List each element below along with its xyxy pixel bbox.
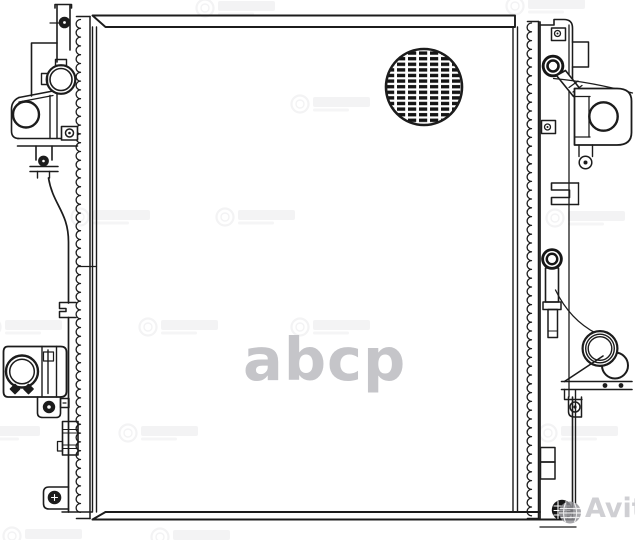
lower-left-screw-tab bbox=[44, 487, 69, 509]
top-mounting-band bbox=[93, 16, 516, 28]
radiator-line-art bbox=[0, 0, 635, 540]
lower-right-outlet-pipe bbox=[583, 331, 628, 378]
side-slots bbox=[541, 448, 556, 480]
hose-clip bbox=[60, 303, 77, 318]
abcp-watermark-text: abcp bbox=[243, 330, 403, 389]
right-clevis-bracket bbox=[552, 183, 579, 205]
left-tank-outline bbox=[49, 178, 93, 512]
left-serrated-seam bbox=[76, 17, 96, 519]
upper-right-port-bracket bbox=[575, 89, 632, 169]
upper-left-inlet-port bbox=[32, 5, 76, 97]
core-fin-detail-circle bbox=[386, 49, 462, 125]
drain-tube bbox=[556, 290, 597, 334]
lower-left-mounting-tab bbox=[38, 397, 70, 418]
avito-logo-icon bbox=[559, 502, 581, 524]
radiator-core bbox=[93, 16, 576, 520]
right-serrated-seam bbox=[527, 22, 538, 519]
pin-hole-tab bbox=[552, 28, 566, 41]
avito-watermark-text: Avito bbox=[585, 495, 635, 522]
listing-image: abcp Avito bbox=[0, 0, 635, 540]
left-drain-fitting bbox=[30, 146, 58, 178]
lower-left-outlet-port bbox=[4, 347, 67, 398]
upper-left-lower-port-bracket bbox=[12, 91, 78, 146]
